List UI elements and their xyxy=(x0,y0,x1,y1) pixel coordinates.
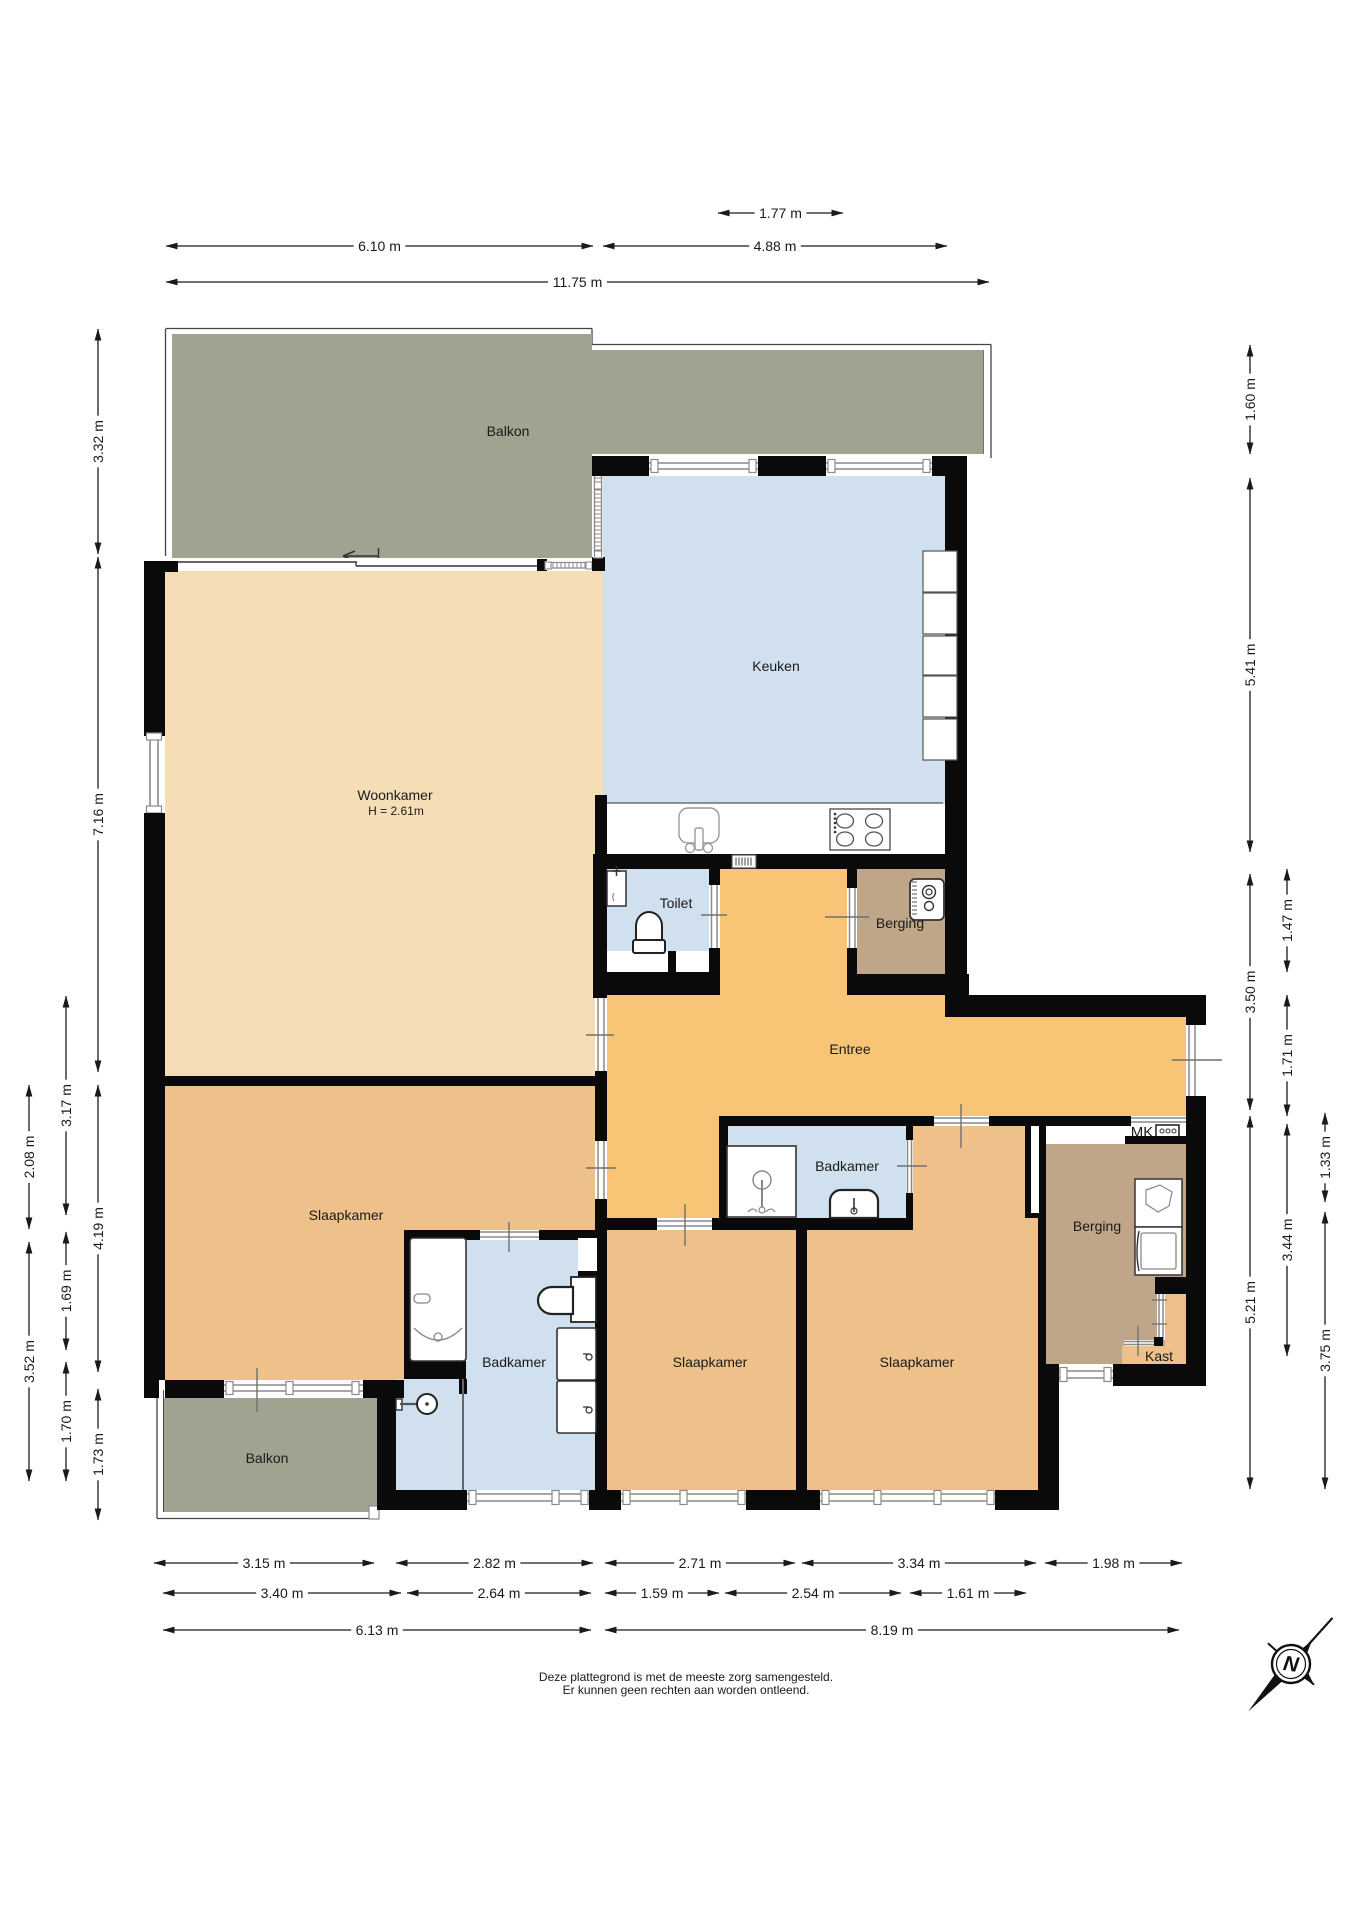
svg-text:3.44 m: 3.44 m xyxy=(1279,1219,1295,1262)
svg-text:Slaapkamer: Slaapkamer xyxy=(309,1207,384,1223)
svg-text:2.54 m: 2.54 m xyxy=(792,1585,835,1601)
svg-text:Keuken: Keuken xyxy=(752,658,799,674)
svg-text:1.77 m: 1.77 m xyxy=(759,205,802,221)
svg-text:Er kunnen geen rechten aan wor: Er kunnen geen rechten aan worden ontlee… xyxy=(563,1683,810,1697)
svg-text:2.82 m: 2.82 m xyxy=(473,1555,516,1571)
svg-text:11.75 m: 11.75 m xyxy=(553,274,603,290)
svg-text:2.08 m: 2.08 m xyxy=(21,1136,37,1179)
svg-text:Badkamer: Badkamer xyxy=(482,1354,546,1370)
svg-text:Entree: Entree xyxy=(829,1041,870,1057)
svg-text:Woonkamer: Woonkamer xyxy=(357,787,433,803)
svg-text:Berging: Berging xyxy=(876,915,924,931)
svg-text:6.10 m: 6.10 m xyxy=(358,238,401,254)
svg-text:3.32 m: 3.32 m xyxy=(90,420,106,463)
svg-text:1.59 m: 1.59 m xyxy=(641,1585,684,1601)
svg-text:3.34 m: 3.34 m xyxy=(898,1555,941,1571)
svg-text:8.19 m: 8.19 m xyxy=(871,1622,914,1638)
svg-text:Deze plattegrond is met de mee: Deze plattegrond is met de meeste zorg s… xyxy=(539,1670,833,1684)
svg-text:7.16 m: 7.16 m xyxy=(90,793,106,836)
svg-text:5.41 m: 5.41 m xyxy=(1242,644,1258,687)
svg-text:Toilet: Toilet xyxy=(660,895,693,911)
svg-text:Berging: Berging xyxy=(1073,1218,1121,1234)
svg-text:2.71 m: 2.71 m xyxy=(679,1555,722,1571)
svg-text:3.50 m: 3.50 m xyxy=(1242,971,1258,1014)
svg-text:1.33 m: 1.33 m xyxy=(1317,1136,1333,1179)
svg-text:1.69 m: 1.69 m xyxy=(58,1270,74,1313)
svg-text:Slaapkamer: Slaapkamer xyxy=(880,1354,955,1370)
svg-text:1.47 m: 1.47 m xyxy=(1279,899,1295,942)
svg-text:Slaapkamer: Slaapkamer xyxy=(673,1354,748,1370)
svg-text:1.98 m: 1.98 m xyxy=(1092,1555,1135,1571)
svg-text:Kast: Kast xyxy=(1145,1348,1173,1364)
svg-text:2.64 m: 2.64 m xyxy=(478,1585,521,1601)
svg-text:3.17 m: 3.17 m xyxy=(58,1084,74,1127)
svg-text:1.73 m: 1.73 m xyxy=(90,1433,106,1476)
svg-text:H = 2.61m: H = 2.61m xyxy=(368,804,424,818)
svg-text:4.19 m: 4.19 m xyxy=(90,1207,106,1250)
svg-text:1.71 m: 1.71 m xyxy=(1279,1034,1295,1077)
svg-text:5.21 m: 5.21 m xyxy=(1242,1281,1258,1324)
svg-text:1.61 m: 1.61 m xyxy=(947,1585,990,1601)
svg-text:1.60 m: 1.60 m xyxy=(1242,378,1258,421)
svg-text:Badkamer: Badkamer xyxy=(815,1158,879,1174)
svg-text:1.70 m: 1.70 m xyxy=(58,1400,74,1443)
svg-text:3.75 m: 3.75 m xyxy=(1317,1329,1333,1372)
svg-text:4.88 m: 4.88 m xyxy=(754,238,797,254)
svg-text:Balkon: Balkon xyxy=(487,423,530,439)
svg-text:3.52 m: 3.52 m xyxy=(21,1340,37,1383)
svg-text:6.13 m: 6.13 m xyxy=(356,1622,399,1638)
svg-text:Balkon: Balkon xyxy=(246,1450,289,1466)
svg-text:3.15 m: 3.15 m xyxy=(243,1555,286,1571)
svg-text:3.40 m: 3.40 m xyxy=(261,1585,304,1601)
